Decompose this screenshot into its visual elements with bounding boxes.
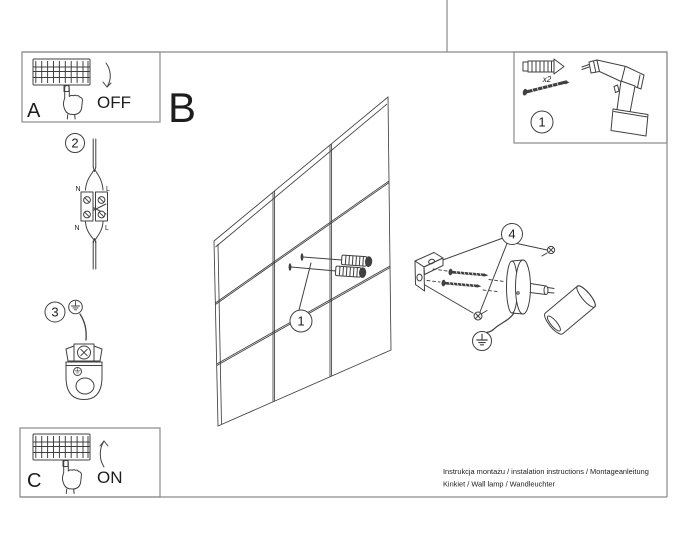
arrow-up-icon bbox=[100, 441, 108, 467]
breaker-on-panel: C ON bbox=[27, 434, 123, 494]
svg-text:4: 4 bbox=[508, 227, 515, 242]
wiring-diagram: 2 N L N L bbox=[66, 134, 111, 270]
svg-text:3: 3 bbox=[51, 305, 58, 320]
mounting-bracket bbox=[415, 253, 443, 292]
lamp-arm bbox=[530, 284, 554, 295]
footer-line-1: Instrukcja montażu / instalation instruc… bbox=[443, 467, 649, 476]
lamp-assembly-drawing bbox=[473, 246, 598, 350]
step-1-badge-wall: 1 bbox=[290, 310, 312, 332]
panel-c-label: C bbox=[27, 470, 41, 492]
instruction-sheet: 1 4 bbox=[0, 0, 688, 550]
leader-line bbox=[517, 244, 547, 251]
terminal-connector bbox=[66, 344, 102, 361]
installation-diagram: 1 4 bbox=[0, 0, 688, 550]
label-n-bottom: N bbox=[74, 225, 79, 232]
on-label: ON bbox=[97, 468, 123, 487]
ground-wire bbox=[80, 314, 86, 340]
breaker-panel-icon bbox=[33, 434, 90, 460]
ground-symbol-icon bbox=[473, 332, 492, 351]
step-3-badge: 3 bbox=[45, 302, 65, 322]
breaker-off-panel: A OFF bbox=[27, 59, 131, 122]
section-b-label: B bbox=[168, 84, 196, 131]
leader-line bbox=[480, 244, 507, 313]
wall-plate-disc bbox=[507, 260, 531, 314]
off-label: OFF bbox=[97, 93, 131, 112]
arrow-down-icon bbox=[103, 63, 111, 87]
svg-text:1: 1 bbox=[538, 115, 545, 130]
hardware-kit-panel: x2 1 bbox=[522, 59, 648, 136]
terminal-block bbox=[81, 192, 108, 221]
step-1-badge: 1 bbox=[531, 111, 553, 133]
mounting-screw-icon bbox=[448, 269, 488, 279]
cable-top bbox=[86, 139, 104, 190]
panel-a-label: A bbox=[27, 100, 41, 122]
hand-icon bbox=[63, 86, 82, 120]
step-4-badge: 4 bbox=[502, 224, 523, 245]
panel-a-box bbox=[22, 52, 160, 122]
cable-bottom bbox=[86, 222, 104, 269]
footer-line-2: Kinkiet / Wall lamp / Wandleuchter bbox=[443, 480, 556, 489]
hand-icon bbox=[62, 460, 81, 494]
leader-line bbox=[440, 238, 503, 261]
ground-wire bbox=[487, 313, 515, 333]
label-l-bottom: L bbox=[105, 225, 109, 232]
fixing-screw-icon bbox=[542, 246, 555, 256]
mounting-screw-icon bbox=[441, 280, 481, 290]
quantity-label: x2 bbox=[542, 75, 552, 84]
mounting-plate bbox=[66, 362, 102, 400]
label-n-top: N bbox=[75, 186, 80, 193]
svg-text:2: 2 bbox=[71, 136, 78, 151]
step-2-badge: 2 bbox=[66, 134, 85, 153]
ground-wire-diagram: 3 bbox=[45, 300, 102, 399]
ground-symbol-icon bbox=[69, 300, 83, 314]
drill-icon bbox=[582, 60, 648, 136]
lamp-head bbox=[542, 283, 598, 336]
svg-text:1: 1 bbox=[297, 314, 304, 329]
breaker-panel-icon bbox=[33, 59, 90, 85]
footer-text: Instrukcja montażu / instalation instruc… bbox=[443, 467, 649, 489]
wall-plug-icon bbox=[523, 59, 564, 74]
